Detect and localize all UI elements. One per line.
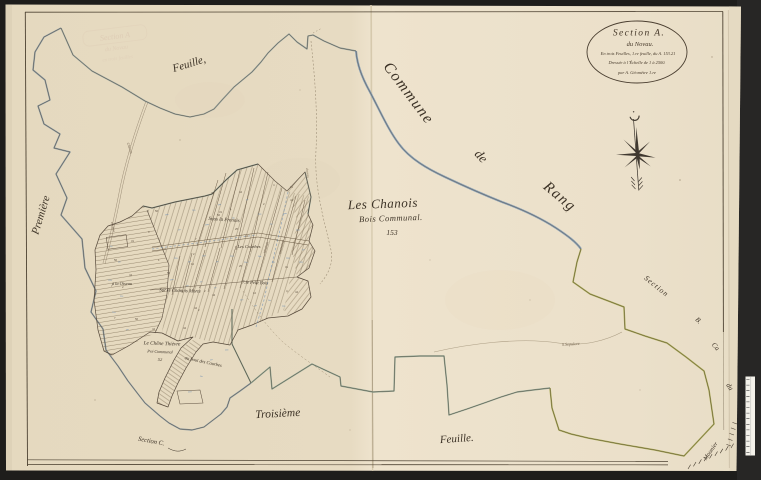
svg-text:Section A.: Section A. — [613, 29, 665, 39]
svg-text:Pré Communal: Pré Communal — [146, 349, 173, 355]
svg-text:25: 25 — [235, 227, 239, 231]
svg-text:44: 44 — [152, 327, 156, 331]
svg-text:25: 25 — [239, 264, 243, 268]
svg-text:31: 31 — [285, 265, 289, 269]
svg-text:56: 56 — [167, 271, 171, 275]
svg-text:12: 12 — [191, 262, 195, 266]
svg-text:du Novau.: du Novau. — [627, 41, 654, 48]
svg-text:Les Courbes: Les Courbes — [236, 244, 260, 249]
svg-text:12: 12 — [245, 234, 249, 238]
svg-text:56: 56 — [155, 209, 159, 213]
svg-text:44: 44 — [295, 290, 299, 294]
svg-text:Feuille.: Feuille. — [438, 432, 474, 446]
svg-text:56: 56 — [114, 258, 118, 262]
svg-text:44: 44 — [239, 190, 243, 194]
svg-text:12: 12 — [253, 291, 257, 295]
svg-text:31: 31 — [131, 239, 135, 243]
svg-text:153: 153 — [386, 228, 398, 237]
svg-text:Les Chanois: Les Chanois — [347, 195, 419, 212]
svg-text:Troisième: Troisième — [255, 407, 301, 421]
svg-text:31: 31 — [211, 191, 215, 195]
svg-text:44: 44 — [194, 306, 198, 310]
svg-text:Dressée à l’Échelle de 1 à 250: Dressée à l’Échelle de 1 à 2500. — [607, 60, 665, 65]
svg-text:7.le Pelit Bois: 7.le Pelit Bois — [242, 280, 268, 286]
svg-text:44: 44 — [129, 273, 133, 277]
svg-text:31: 31 — [219, 210, 223, 214]
svg-text:par A. Géomètre 1.re: par A. Géomètre 1.re — [617, 70, 656, 75]
svg-text:à la Oiseau: à la Oiseau — [112, 281, 133, 286]
svg-text:44: 44 — [163, 247, 167, 251]
svg-text:44: 44 — [212, 293, 216, 297]
svg-text:44: 44 — [183, 326, 187, 330]
svg-text:56: 56 — [135, 317, 139, 321]
